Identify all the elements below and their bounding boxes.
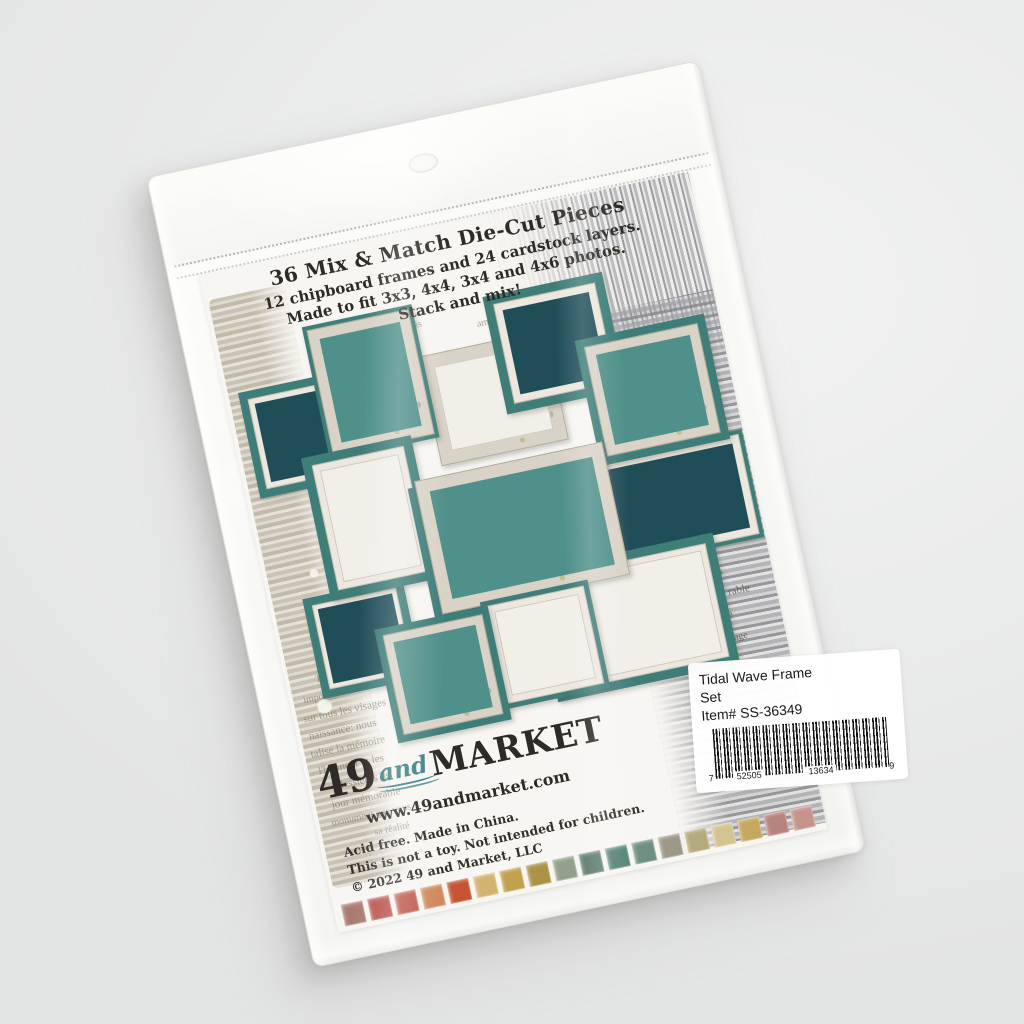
color-swatch bbox=[473, 872, 499, 898]
package-bag: a de nouve bonheur depuis amour août 18 … bbox=[146, 60, 866, 968]
color-swatch bbox=[578, 850, 604, 876]
color-swatch bbox=[499, 867, 525, 893]
color-swatch bbox=[420, 884, 446, 910]
barcode: 7 52505 13634 9 bbox=[702, 716, 898, 791]
color-swatch bbox=[341, 900, 367, 926]
product-card: a de nouve bonheur depuis amour août 18 … bbox=[199, 172, 828, 933]
color-swatch bbox=[710, 822, 736, 848]
label-sticker: Tidal Wave Frame Set Item# SS-36349 7 52… bbox=[688, 649, 909, 793]
color-swatch bbox=[684, 827, 710, 853]
color-swatch bbox=[631, 839, 657, 865]
color-swatch bbox=[367, 895, 393, 921]
color-swatch bbox=[605, 844, 631, 870]
color-swatch bbox=[393, 889, 419, 915]
color-swatch bbox=[763, 811, 789, 837]
color-swatch bbox=[526, 861, 552, 887]
color-swatch bbox=[737, 816, 763, 842]
color-swatch bbox=[446, 878, 472, 904]
logo-and-script: and bbox=[375, 749, 430, 788]
barcode-digit: 13634 bbox=[805, 764, 837, 776]
hang-hole bbox=[407, 151, 440, 176]
barcode-digit: 7 bbox=[705, 772, 717, 783]
color-swatch bbox=[658, 833, 684, 859]
barcode-digit: 9 bbox=[886, 760, 898, 771]
color-swatch bbox=[552, 855, 578, 881]
barcode-digit: 52505 bbox=[733, 769, 765, 781]
product-photo: a de nouve bonheur depuis amour août 18 … bbox=[0, 0, 1024, 1024]
color-swatch bbox=[790, 805, 816, 831]
barcode-bars bbox=[712, 716, 889, 778]
